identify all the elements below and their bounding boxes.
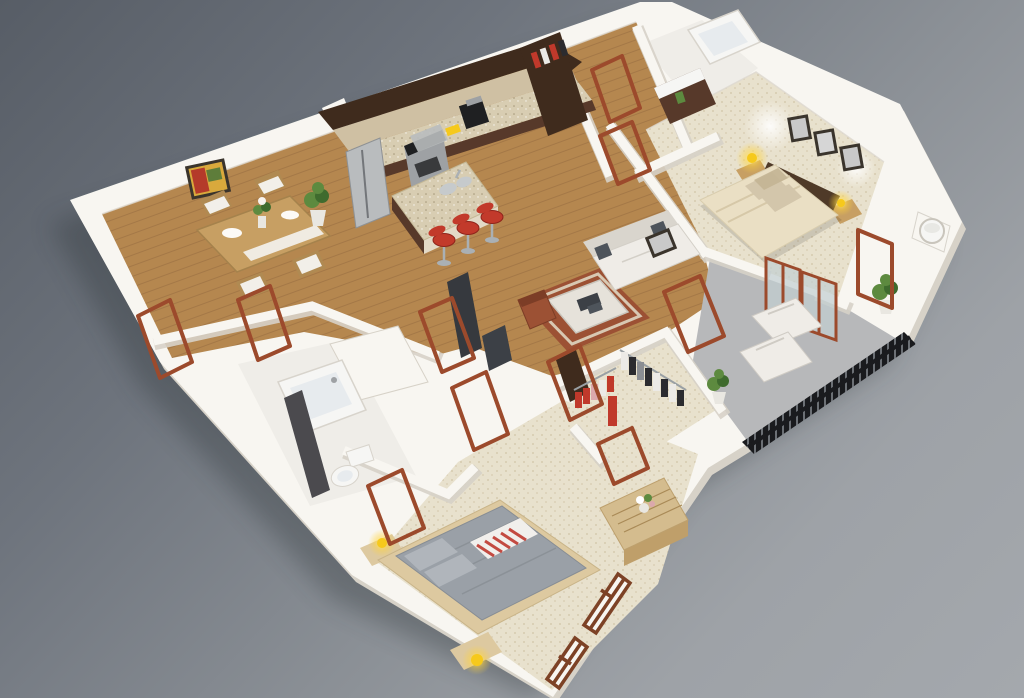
dining-chair xyxy=(236,272,270,300)
bed-shadow xyxy=(700,170,842,264)
wall-balcony-stub-right xyxy=(820,294,844,304)
bar-stools xyxy=(427,200,503,266)
dining-area xyxy=(185,158,330,300)
door-frame xyxy=(598,428,648,484)
nightstand xyxy=(360,534,404,566)
wall-closet-stub xyxy=(576,430,600,458)
shower-partition xyxy=(284,390,330,498)
bathtub xyxy=(278,360,366,434)
table-lamp xyxy=(747,153,757,163)
kitchen-lower-cabinets xyxy=(365,100,596,182)
potted-plant xyxy=(872,274,898,314)
entry-hall xyxy=(520,32,588,136)
island-sink-basin xyxy=(438,181,459,197)
door-frame xyxy=(600,122,650,184)
coffee-table-books xyxy=(577,293,602,312)
kitchen-backsplash xyxy=(333,58,575,150)
wood-floor-entry xyxy=(556,22,694,172)
plate xyxy=(281,211,299,220)
bathtub xyxy=(688,10,760,64)
wall-art xyxy=(185,158,231,200)
clothes-rod xyxy=(620,350,686,390)
utility-ledge xyxy=(912,212,950,252)
kitchen-upper-cabinets-return xyxy=(528,40,582,80)
door-frame xyxy=(858,230,892,308)
kitchen-upper-cabinets xyxy=(318,40,560,130)
wall-corridor-right xyxy=(638,30,688,148)
sofa xyxy=(583,210,700,290)
potted-plant xyxy=(304,182,329,226)
window xyxy=(547,638,587,688)
master-bedroom xyxy=(700,100,876,264)
picture-frame xyxy=(813,128,838,156)
toilet xyxy=(329,445,374,490)
island-side xyxy=(392,196,424,254)
door-frame xyxy=(238,286,290,360)
picture-frame xyxy=(839,143,864,171)
headboard xyxy=(761,162,840,211)
hanging-clothes xyxy=(531,39,569,68)
flower-vase xyxy=(636,494,655,513)
towel xyxy=(675,91,686,104)
nightstand xyxy=(736,160,770,186)
balcony-doors xyxy=(766,258,836,340)
entry-closet xyxy=(520,32,588,136)
armchair xyxy=(518,290,556,329)
lounge-chair xyxy=(740,332,812,382)
wall-master-sw xyxy=(612,128,704,252)
water-heater xyxy=(920,219,944,243)
media-console xyxy=(482,325,512,371)
wall-light-glow xyxy=(836,148,876,188)
railing-top-rail xyxy=(748,337,910,447)
island-sink-basin2 xyxy=(455,175,473,190)
dresser xyxy=(600,478,688,566)
wall-closet xyxy=(560,332,720,408)
bar-stool xyxy=(451,211,479,254)
door-frame xyxy=(592,56,640,122)
wall-picture xyxy=(645,228,677,258)
second-bathroom xyxy=(654,10,760,124)
wood-floor-main xyxy=(102,52,716,376)
tile-floor-bathroom xyxy=(238,340,416,506)
outer-wall-top xyxy=(70,2,962,697)
balcony-railing xyxy=(742,332,916,454)
building-shadow xyxy=(50,26,942,698)
island-base xyxy=(424,206,498,254)
bed-duvet xyxy=(396,506,586,620)
hanging-clothes xyxy=(621,352,684,406)
table-lamp xyxy=(837,199,845,207)
kitchen xyxy=(318,40,596,266)
nightstand xyxy=(450,632,502,670)
potted-plant xyxy=(707,369,729,404)
door-frames xyxy=(138,56,892,544)
table-lamp-glow xyxy=(736,142,768,174)
bed-pillow xyxy=(762,184,802,212)
dresser-top xyxy=(600,478,688,550)
dining-chair xyxy=(292,250,326,278)
flower-vase xyxy=(253,197,271,228)
table-runner xyxy=(243,225,324,261)
range-hood xyxy=(410,124,448,152)
coffee-table xyxy=(548,280,628,333)
window xyxy=(584,574,630,633)
bar-stool xyxy=(427,223,455,266)
closet-shelf-unit xyxy=(556,350,590,402)
duvet-folds xyxy=(420,518,556,594)
carpet-guest-bedroom xyxy=(374,400,698,690)
dining-chair xyxy=(254,170,286,196)
kitchen-island xyxy=(392,162,498,254)
bathroom xyxy=(278,360,374,498)
plate xyxy=(222,228,242,238)
walk-in-closet xyxy=(556,350,686,426)
guest-bedroom xyxy=(360,478,688,688)
wall-corridor-left xyxy=(558,54,608,172)
table-lamp-glow xyxy=(368,529,396,557)
coffee-maker xyxy=(459,96,489,129)
vanity xyxy=(654,68,716,124)
door-frame xyxy=(452,372,508,450)
dresser-front xyxy=(624,520,688,566)
dining-chair xyxy=(200,190,232,216)
sofa-pillow xyxy=(594,243,612,260)
sofa-back xyxy=(583,210,678,257)
wall-dining-south xyxy=(158,306,434,354)
bed-pillow xyxy=(754,168,788,190)
door-frame xyxy=(664,276,724,352)
sofa-pillow xyxy=(650,221,668,238)
floor-plan-render xyxy=(0,0,1024,698)
living-room xyxy=(447,210,700,371)
range-oven xyxy=(404,130,452,202)
door-frame xyxy=(368,470,424,544)
double-bed xyxy=(700,162,842,264)
carpet-walk-in-closet xyxy=(572,338,716,460)
refrigerator xyxy=(346,138,390,228)
refrigerator-handle xyxy=(362,150,368,218)
bar-stool xyxy=(475,200,503,243)
wall-light-glow xyxy=(744,100,796,152)
bed xyxy=(378,500,600,634)
counter-accessory-yellow xyxy=(445,124,461,136)
table-lamp xyxy=(471,654,483,666)
tub-faucet xyxy=(331,377,337,383)
outer-wall-edge xyxy=(74,9,966,698)
area-rug xyxy=(520,268,650,352)
bed-pillow xyxy=(404,538,458,571)
bed-pillow xyxy=(424,554,477,587)
bed-duvet xyxy=(700,165,838,258)
kitchen-counter-granite xyxy=(348,78,592,172)
oven-window xyxy=(414,156,441,177)
laundry-closet xyxy=(330,326,428,400)
table-lamp-glow xyxy=(828,190,854,216)
tile-floor-bath2 xyxy=(642,20,758,112)
picture-frame xyxy=(787,114,812,142)
wall-kitchen-pillar xyxy=(322,98,352,128)
sofa-seat xyxy=(593,224,700,290)
table-lamp xyxy=(377,538,387,548)
clothes-rod xyxy=(574,368,616,390)
floor-inner-outline xyxy=(102,22,884,214)
hanging-clothes xyxy=(575,376,617,426)
door-frame xyxy=(138,300,192,378)
interior-walls xyxy=(158,30,846,497)
dining-table xyxy=(197,196,330,272)
striped-throw xyxy=(470,518,538,559)
utility-closet xyxy=(912,212,950,252)
balcony-floor xyxy=(692,258,902,442)
balcony xyxy=(740,258,916,454)
bed-frame xyxy=(378,500,600,634)
bed-pillow xyxy=(745,172,786,200)
island-top xyxy=(392,162,498,240)
carpet-master-bedroom xyxy=(646,72,884,298)
table-lamp-glow xyxy=(462,645,492,675)
door-frame xyxy=(420,298,474,372)
tv-panel xyxy=(447,272,482,358)
door-frame xyxy=(548,346,602,420)
wall-bath2 xyxy=(640,138,714,172)
wall-guest-nw xyxy=(348,452,472,494)
lounge-chair xyxy=(752,298,822,344)
nightstand xyxy=(830,199,862,224)
duvet-fold xyxy=(716,176,800,222)
wall-balcony-stub-left xyxy=(706,252,762,272)
range-cooktop xyxy=(404,130,446,156)
island-faucet xyxy=(456,170,460,178)
